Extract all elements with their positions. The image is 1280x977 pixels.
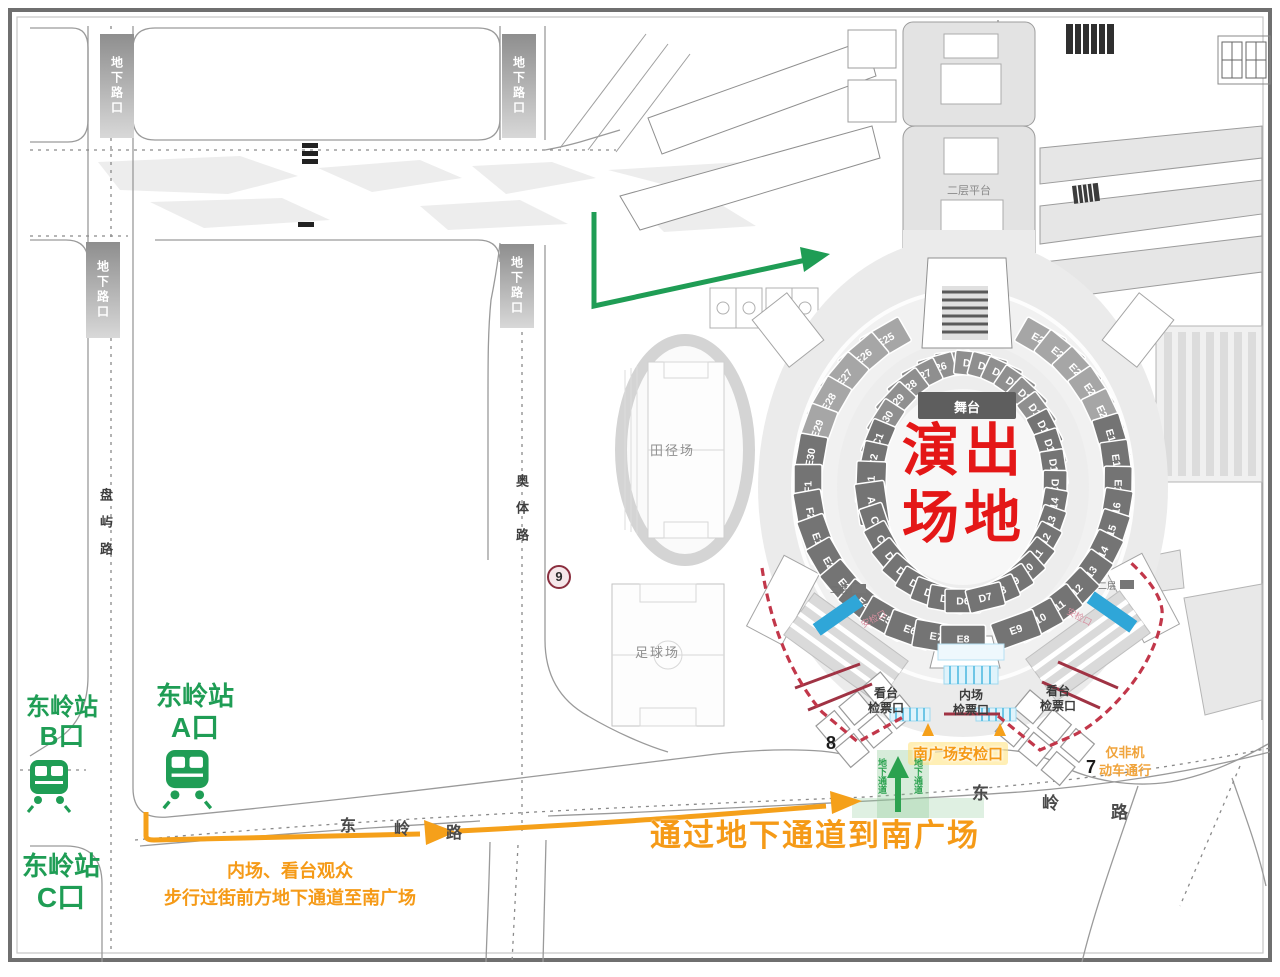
tennis-courts-icon bbox=[1218, 36, 1270, 84]
stand-gate-line1: 看台 bbox=[1028, 684, 1088, 699]
metro-exit-b: 东岭站 B口 bbox=[16, 694, 108, 751]
metro-exit-a-label: A口 bbox=[146, 712, 244, 744]
infield-gate-line2: 检票口 bbox=[941, 703, 1001, 718]
metro-station-name: 东岭站 bbox=[146, 682, 244, 712]
route-sub-note: 内场、看台观众 步行过街前方地下通道至南广场 bbox=[128, 858, 452, 912]
underpass-label-left: 地下通道 bbox=[876, 758, 889, 816]
road-label-char: 东 bbox=[340, 812, 356, 836]
non-motor-line2: 动车通行 bbox=[1088, 762, 1162, 780]
route-main-note: 通过地下通道到南广场 bbox=[650, 810, 980, 855]
metro-station-name: 东岭站 bbox=[12, 852, 110, 882]
road-label-char: 路 bbox=[446, 819, 462, 843]
road-label-char: 岭 bbox=[394, 815, 410, 839]
stand-gate-line1: 看台 bbox=[856, 686, 916, 701]
orange-route-line-1 bbox=[146, 812, 420, 840]
gate-9-marker: 9 bbox=[547, 565, 571, 589]
level2-icon-left bbox=[852, 584, 866, 593]
infield-gate-line1: 内场 bbox=[941, 688, 1001, 703]
non-motor-line1: 仅非机 bbox=[1088, 744, 1162, 762]
metro-station-name: 东岭站 bbox=[16, 694, 108, 722]
hatch-building-icon bbox=[1066, 24, 1114, 54]
metro-exit-c: 东岭站 C口 bbox=[12, 852, 110, 914]
route-sub1: 内场、看台观众 bbox=[128, 858, 452, 885]
football-field-label: 足球场 bbox=[635, 642, 680, 661]
venue-map: E25E26E27E28E29E30F1F2E1E2E3E4E5E6E7E8E2… bbox=[0, 0, 1280, 977]
train-icon-b bbox=[28, 760, 70, 812]
athletics-field-label: 田径场 bbox=[650, 440, 695, 459]
stairs-hatch-icon bbox=[1072, 183, 1100, 204]
metro-exit-a: 东岭站 A口 bbox=[146, 682, 244, 744]
level2-left-label: 二层 bbox=[830, 583, 848, 596]
road-label-char: 路 bbox=[1111, 798, 1128, 823]
level2-right-label: 二层 bbox=[1098, 579, 1116, 592]
underpass-banner-3: 地下路口 bbox=[86, 242, 120, 338]
metro-exit-b-label: B口 bbox=[16, 722, 108, 752]
venue-title-line1: 演出 bbox=[891, 418, 1037, 485]
road-label-char: 岭 bbox=[1042, 789, 1059, 814]
map-svg: E25E26E27E28E29E30F1F2E1E2E3E4E5E6E7E8E2… bbox=[0, 0, 1280, 977]
stairs-icon bbox=[942, 286, 988, 340]
route-sub2: 步行过街前方地下通道至南广场 bbox=[128, 885, 452, 912]
venue-title-line2: 场地 bbox=[891, 485, 1037, 552]
stage-label: 舞台 bbox=[918, 397, 1016, 416]
panyu-road-label: 盘屿路 bbox=[96, 488, 115, 608]
underpass-banner-2: 地下路口 bbox=[502, 34, 536, 138]
underpass-banner-4: 地下路口 bbox=[500, 244, 534, 328]
aoti-road-label: 奥体路 bbox=[512, 474, 531, 594]
green-route-arrowhead bbox=[800, 247, 830, 272]
stand-gate-right-label: 看台 检票口 bbox=[1028, 684, 1088, 714]
non-motor-note: 仅非机 动车通行 bbox=[1088, 744, 1162, 780]
metro-exit-c-label: C口 bbox=[12, 882, 110, 914]
infield-gate-label: 内场 检票口 bbox=[941, 688, 1001, 718]
venue-title: 演出 场地 bbox=[891, 418, 1037, 551]
underpass-banner-1: 地下路口 bbox=[100, 34, 134, 138]
level2-icon-right bbox=[1120, 580, 1134, 589]
underpass-label-right: 地下通道 bbox=[912, 758, 925, 816]
parking-stripes bbox=[1156, 326, 1262, 482]
road-label-char: 东 bbox=[972, 779, 989, 804]
stand-gate-left-label: 看台 检票口 bbox=[856, 686, 916, 716]
gate-7-marker: 7 bbox=[1086, 757, 1096, 778]
stand-gate-line2: 检票口 bbox=[1028, 699, 1088, 714]
stand-gate-line2: 检票口 bbox=[856, 701, 916, 716]
platform-label: 二层平台 bbox=[938, 182, 1000, 198]
gate-8-marker: 8 bbox=[826, 733, 836, 754]
train-icon-a bbox=[164, 750, 211, 808]
